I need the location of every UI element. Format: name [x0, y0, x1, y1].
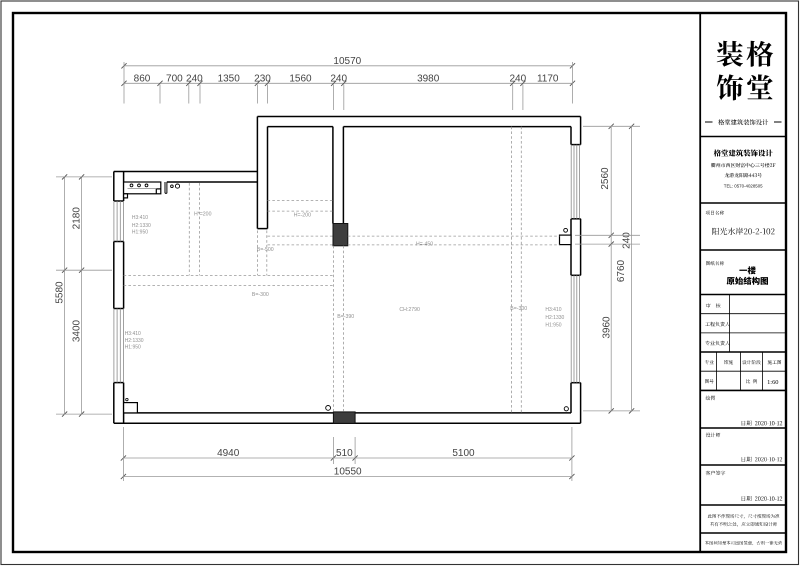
svg-text:240: 240: [186, 73, 203, 84]
svg-text:H1:950: H1:950: [545, 322, 561, 328]
svg-text:230: 230: [254, 73, 271, 84]
svg-text:240: 240: [509, 73, 526, 84]
svg-text:10550: 10550: [334, 467, 362, 478]
svg-text:3400: 3400: [72, 319, 83, 342]
svg-text:TEL: 0570-4028505: TEL: 0570-4028505: [724, 184, 763, 189]
svg-text:2180: 2180: [72, 207, 83, 230]
svg-text:B=-500: B=-500: [257, 247, 274, 253]
svg-text:B=-300: B=-300: [510, 306, 527, 312]
svg-text:510: 510: [336, 448, 353, 459]
svg-text:H=-450: H=-450: [416, 241, 433, 247]
svg-text:H3:410: H3:410: [125, 331, 141, 337]
svg-text:H1:950: H1:950: [125, 345, 141, 351]
svg-text:860: 860: [134, 73, 151, 84]
svg-text:1350: 1350: [218, 73, 241, 84]
svg-text:700: 700: [166, 73, 183, 84]
svg-text:1:60: 1:60: [767, 379, 778, 386]
svg-text:H*=200: H*=200: [194, 211, 212, 217]
svg-text:H2:1330: H2:1330: [545, 315, 564, 321]
svg-text:CH:2790: CH:2790: [399, 307, 420, 313]
svg-text:H1:950: H1:950: [132, 230, 148, 236]
svg-text:5100: 5100: [452, 448, 475, 459]
svg-text:5580: 5580: [55, 281, 66, 304]
svg-text:B=-300: B=-300: [252, 292, 269, 298]
svg-text:10570: 10570: [333, 56, 361, 67]
svg-text:3980: 3980: [417, 73, 440, 84]
svg-text:2560: 2560: [600, 167, 611, 190]
svg-text:H3:410: H3:410: [545, 307, 561, 313]
svg-text:1170: 1170: [537, 73, 559, 84]
svg-text:240: 240: [622, 232, 633, 249]
svg-text:B=-390: B=-390: [337, 314, 354, 320]
svg-text:H3:410: H3:410: [132, 215, 148, 221]
svg-text:H2:1330: H2:1330: [132, 223, 151, 229]
svg-text:240: 240: [330, 73, 347, 84]
svg-text:1560: 1560: [289, 73, 312, 84]
svg-text:3960: 3960: [602, 316, 613, 339]
svg-text:6760: 6760: [616, 259, 627, 282]
svg-text:H=-200: H=-200: [294, 213, 311, 219]
svg-text:H2:1330: H2:1330: [125, 338, 144, 344]
svg-text:4940: 4940: [217, 448, 240, 459]
